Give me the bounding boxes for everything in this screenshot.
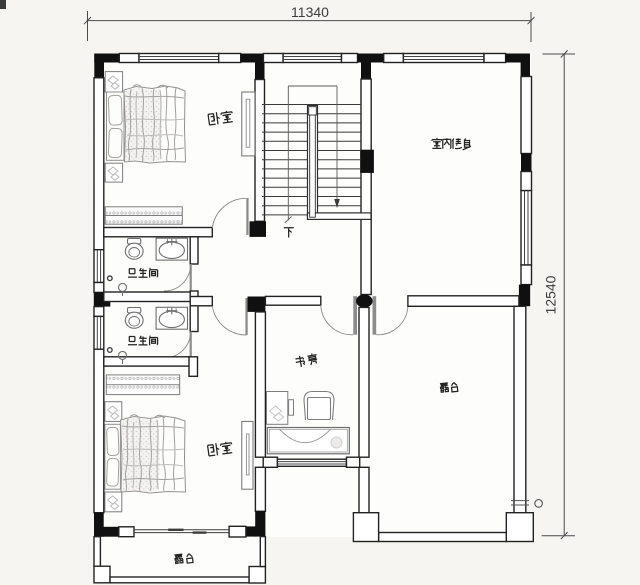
svg-text:11340: 11340 <box>291 4 329 20</box>
svg-text:12540: 12540 <box>543 275 559 314</box>
